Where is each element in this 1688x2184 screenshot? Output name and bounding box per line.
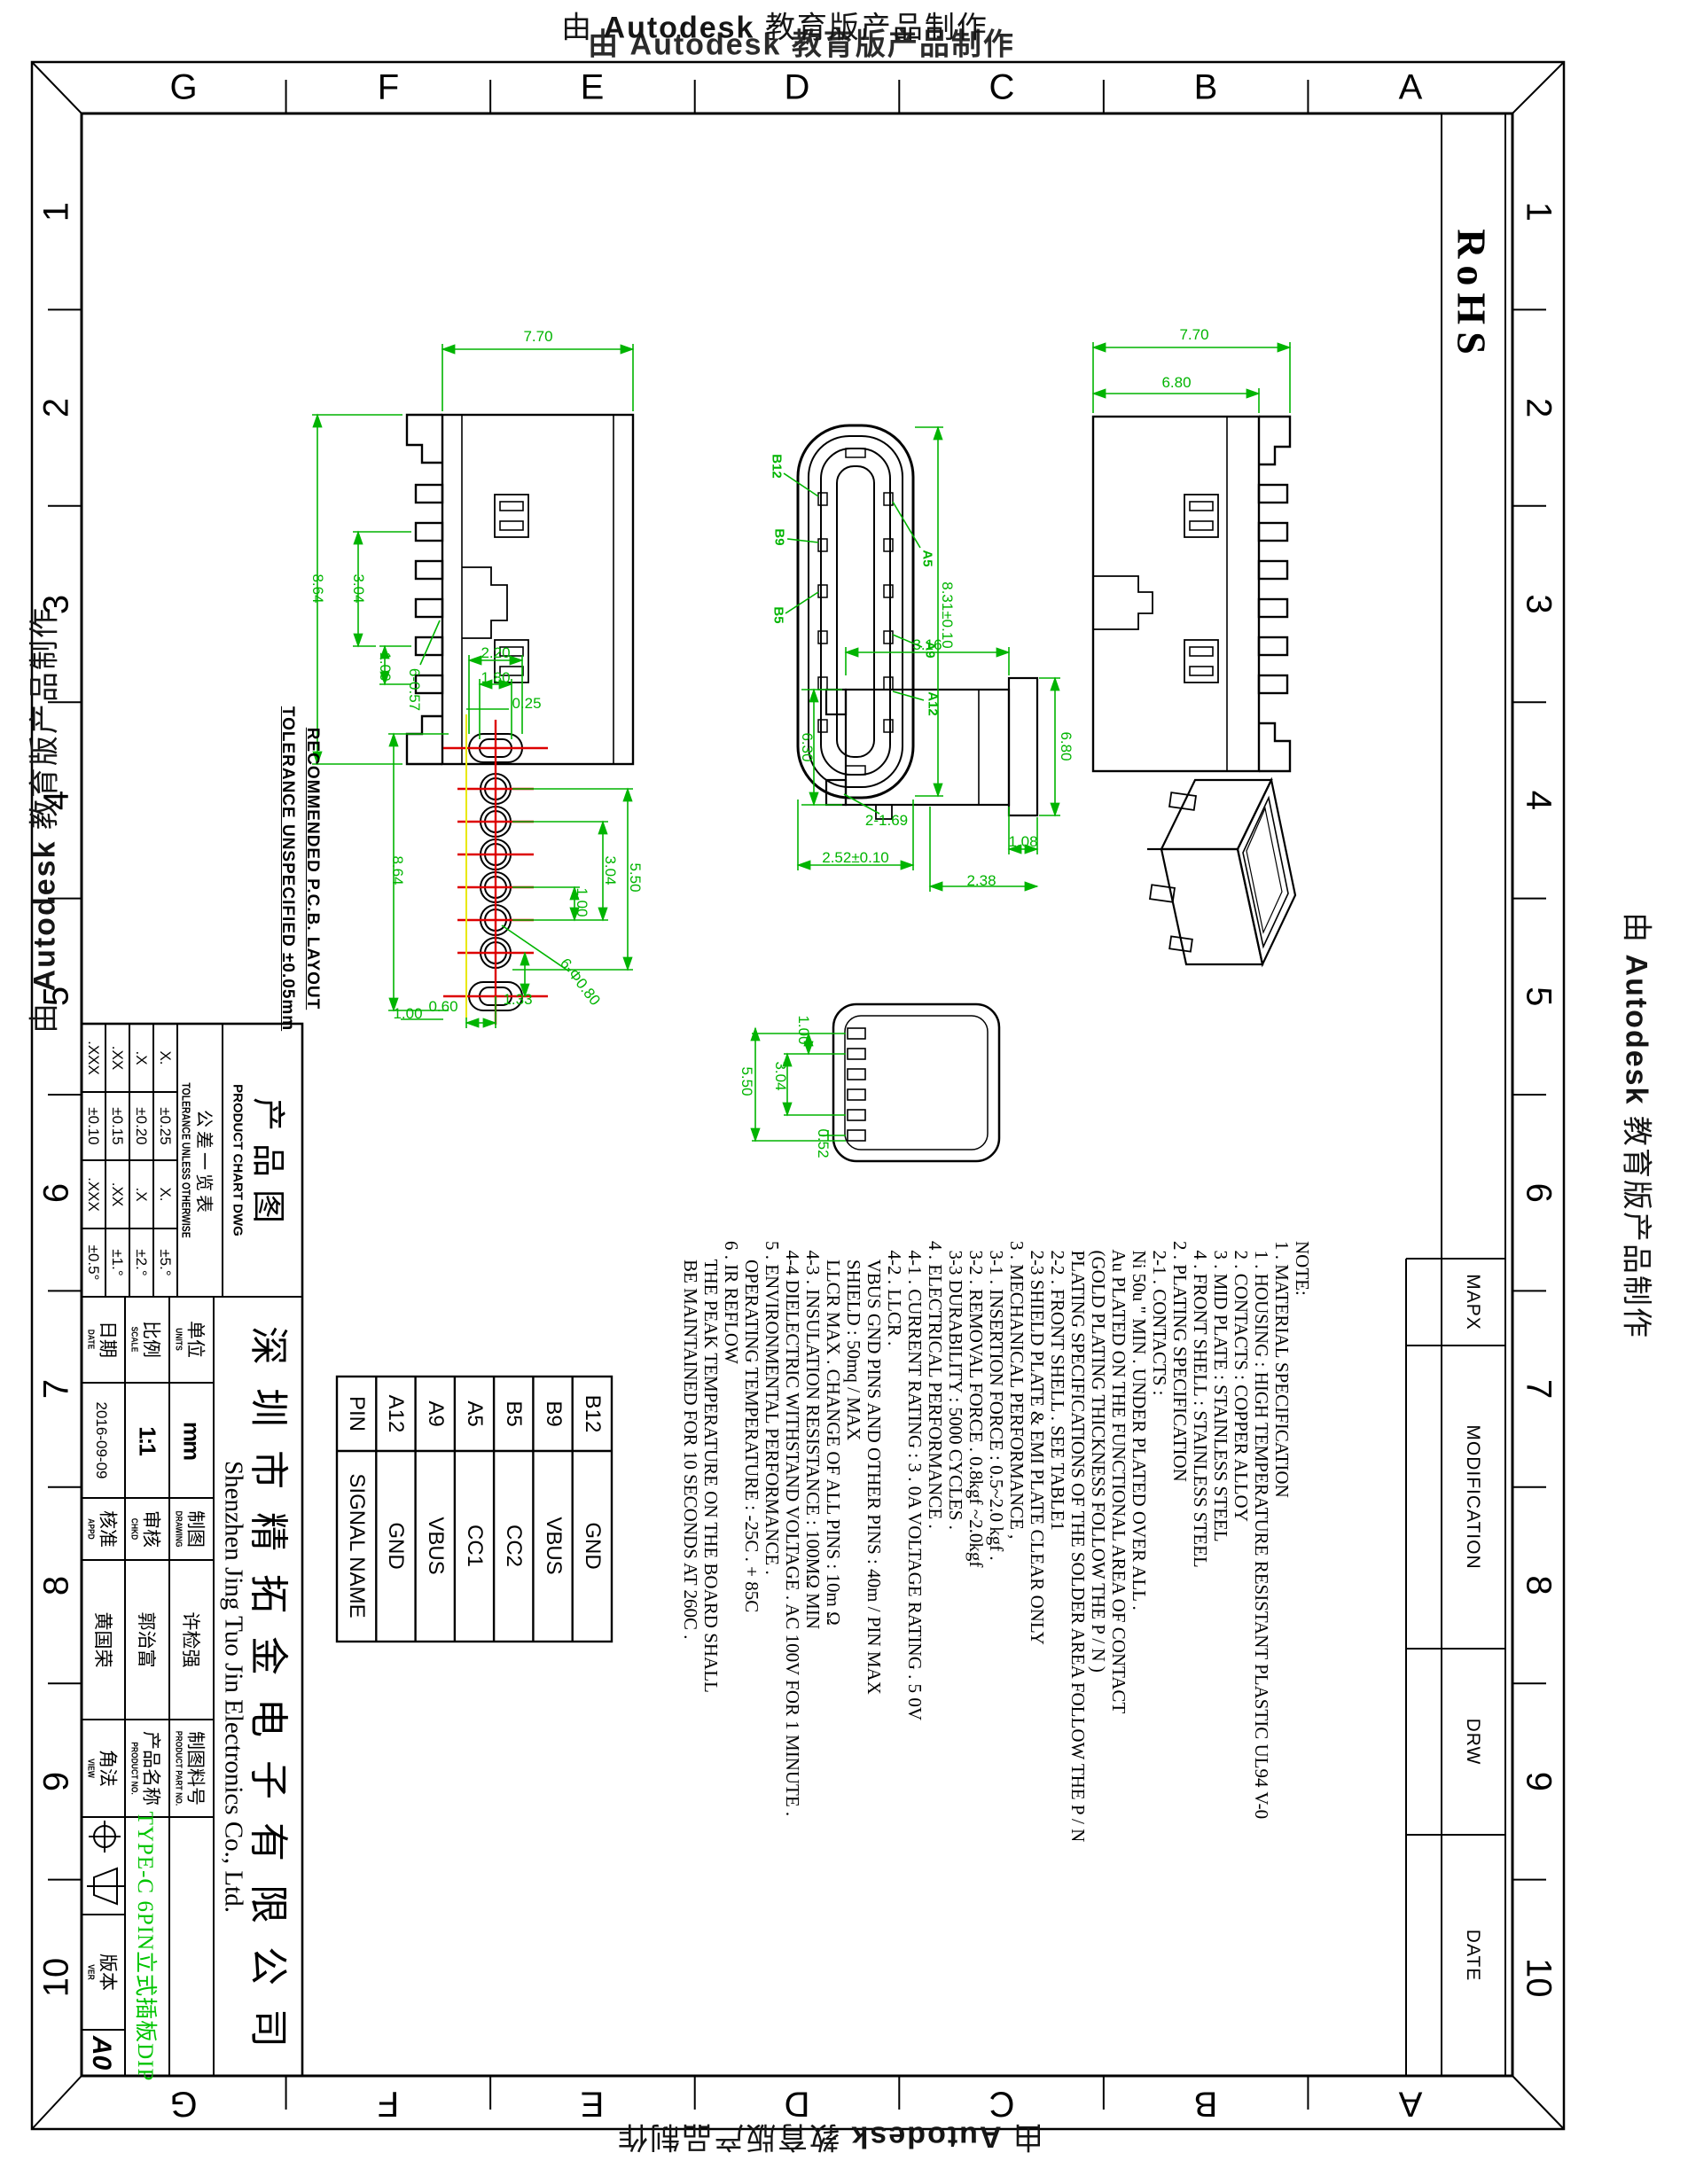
pin-table-cell: GND: [384, 1522, 409, 1569]
pin-table-cell: B9: [541, 1400, 566, 1426]
date-label-en: DATE: [86, 1323, 96, 1355]
pin-table-header: PIN: [344, 1396, 369, 1431]
projection-symbol: [87, 1821, 124, 1904]
tolerance-cell: ±0.15: [109, 1107, 127, 1144]
tolerance-cell: .X: [133, 1050, 151, 1065]
pin-table-cell: CC2: [501, 1525, 526, 1567]
dim-label: 0.25: [512, 695, 541, 713]
view-label: 角法 VIEW: [86, 1750, 122, 1787]
view-label-zh: 角法: [96, 1750, 122, 1787]
tolerance-cell: ±5.°: [157, 1249, 175, 1275]
dim-label: 3.16: [912, 636, 942, 654]
watermark-text: 教育版产品制作: [1620, 1105, 1653, 1338]
tolerance-cell: ±2.°: [133, 1249, 151, 1275]
product-name-label-en: PRODUCT NO.: [129, 1736, 139, 1799]
units-label-zh: 单位: [184, 1321, 210, 1358]
dim-label: 2.20: [481, 644, 510, 662]
border-row-label: C: [989, 68, 1014, 108]
product-name-value: TYPE-C 6PIN立式插板DIP: [131, 1812, 163, 2082]
pin-table-cell: A5: [462, 1400, 487, 1426]
dim-label: 8.64: [309, 573, 326, 603]
tolerance-cell: .XXX: [85, 1041, 103, 1075]
tolerance-cell: ±0.20: [133, 1107, 151, 1144]
pin-callout: B5: [771, 606, 786, 623]
pcb-layout-note: RECOMMENDED P.C.B. LAYOUT: [302, 728, 322, 1010]
pin-table-cell: B12: [580, 1395, 605, 1433]
border-row-label: G: [170, 68, 198, 108]
dim-label: 6.80: [1161, 374, 1191, 392]
border-column-label: 5: [37, 987, 77, 1006]
pin-callout: B12: [770, 454, 785, 479]
portrait-page: RoHS NOTE: 1 . MATERIAL SPECIFICATION 1 …: [0, 0, 1688, 2184]
tolerance-cell: ±0.5°: [85, 1245, 103, 1281]
watermark-text: Autodesk: [850, 2120, 1002, 2154]
dim-label: 1.00: [393, 1005, 422, 1023]
chkd-label-zh: 审核: [139, 1510, 166, 1548]
pin-callout: B9: [772, 528, 787, 545]
ver-label: 版本 VER: [86, 1954, 122, 1991]
tolerance-cell: ±1.°: [109, 1249, 127, 1275]
appd-name: 黄国荣: [90, 1612, 117, 1668]
revision-strip: [1406, 113, 1505, 2076]
dim-label: 1.00: [376, 651, 394, 681]
watermark-bottom: 由 Autodesk 教育版产品制作: [20, 606, 64, 1033]
part-no-label: 制图料号 PRODUCT PART NO.: [174, 1724, 210, 1812]
drawing-label-en: DRAWING: [174, 1510, 184, 1547]
dim-label: 6-0.57: [405, 668, 423, 711]
appd-label-en: APPD: [86, 1513, 96, 1545]
company-name-zh: 深圳市精拓金电子有限公司: [244, 1326, 301, 2071]
part-no-label-zh: 制图料号: [184, 1724, 210, 1812]
ver-value: A0: [86, 2036, 116, 2070]
tolerance-cell: ±0.25: [157, 1107, 175, 1144]
product-chart-title-en: PRODUCT CHART DWG: [231, 1084, 246, 1236]
watermark-text: 由: [1001, 2120, 1043, 2154]
border-row-label: G: [170, 2084, 198, 2124]
watermark-text: Autodesk: [28, 840, 62, 992]
pin-callout: A12: [926, 691, 941, 716]
dim-label: 7.70: [523, 328, 552, 346]
dim-label: 1.80: [481, 669, 510, 687]
border-row-label: B: [1194, 2084, 1218, 2124]
scale-label: 比例 SCALE: [129, 1321, 166, 1358]
company-name-en: Shenzhen Jing Tuo Jin Electronics Co., L…: [219, 1461, 248, 1913]
rohs-mark: RoHS: [1449, 229, 1496, 362]
watermark-text: Autodesk: [1620, 955, 1653, 1106]
dim-label: 5.50: [626, 862, 644, 892]
border-row-label: A: [1398, 68, 1422, 108]
border-column-label: 10: [1519, 1958, 1559, 1998]
dim-label: 6.80: [1057, 731, 1075, 760]
product-chart-title-zh: 产品图: [247, 1097, 296, 1236]
date-value: 2016-09-09: [92, 1402, 110, 1479]
pad-crosshairs: [443, 720, 548, 1025]
pcb-layout-note: TOLERANCE UNSPECIFIED ±0.05mm: [277, 706, 297, 1031]
chkd-label: 审核 CHKD: [129, 1510, 166, 1548]
pin-table-cell: VBUS: [541, 1517, 566, 1574]
pin-table-cell: B5: [501, 1400, 526, 1426]
border-column-label: 3: [37, 594, 77, 613]
border-column-label: 9: [1519, 1772, 1559, 1791]
revision-cell-label: MAPX: [1462, 1274, 1483, 1330]
pin-table-cell: VBUS: [423, 1517, 448, 1574]
view-isometric: [1147, 780, 1295, 964]
product-name-label-zh: 产品名称: [139, 1731, 166, 1806]
dim-label: 7.70: [1179, 326, 1208, 344]
chkd-label-en: CHKD: [129, 1513, 139, 1545]
date-label-zh: 日期: [96, 1321, 122, 1358]
dim-label: 3.04: [349, 573, 367, 603]
view-label-en: VIEW: [86, 1752, 96, 1784]
dim-label: 6.30: [798, 732, 816, 761]
scale-label-zh: 比例: [139, 1321, 166, 1358]
border-row-label: B: [1194, 68, 1218, 108]
appd-label-zh: 核准: [96, 1510, 122, 1548]
border-column-label: 8: [37, 1575, 77, 1595]
watermark-right: 由 Autodesk 教育版产品制作: [616, 2118, 1043, 2162]
tolerance-cell: X.: [157, 1050, 175, 1065]
tolerance-cell: .X: [133, 1187, 151, 1201]
border-column-label: 6: [37, 1183, 77, 1203]
dim-label: 0.60: [428, 998, 457, 1016]
revision-cell-label: DATE: [1462, 1930, 1483, 1981]
border-column-label: 10: [37, 1958, 77, 1998]
border-row-label: F: [378, 68, 399, 108]
border-row-label: F: [378, 2084, 399, 2124]
pin-table-cell: GND: [580, 1522, 605, 1569]
product-name-label: 产品名称 PRODUCT NO.: [129, 1731, 166, 1806]
border-row-label: E: [581, 68, 605, 108]
dim-label: 2.38: [966, 872, 996, 890]
revision-cell-label: DRW: [1462, 1719, 1483, 1766]
drawing-sheet: RoHS NOTE: 1 . MATERIAL SPECIFICATION 1 …: [0, 0, 1688, 2184]
border-row-label: C: [989, 2084, 1014, 2124]
pin-table-cell: CC1: [462, 1525, 487, 1567]
dim-label: 1.33: [503, 991, 532, 1009]
units-label-en: UNITS: [174, 1323, 184, 1355]
border-column-label: 7: [1519, 1379, 1559, 1399]
notes-block: NOTE: 1 . MATERIAL SPECIFICATION 1 . HOU…: [680, 1241, 1312, 1842]
dim-label: 1.08: [1008, 833, 1037, 851]
view-bottom: [833, 1004, 999, 1161]
border-row-label: A: [1398, 2084, 1422, 2124]
pin-table-header: SIGNAL NAME: [344, 1473, 369, 1618]
watermark-text: 教育版产品制作: [781, 28, 1014, 62]
scale-value: 1:1: [134, 1426, 161, 1455]
border-column-label: 3: [1519, 594, 1559, 613]
border-column-label: 4: [1519, 791, 1559, 810]
pin-table-cell: A9: [423, 1400, 448, 1426]
units-value: mm: [178, 1422, 206, 1459]
border-column-label: 4: [37, 791, 77, 810]
border-column-label: 7: [37, 1379, 77, 1399]
view-top: [1093, 417, 1290, 771]
ver-label-zh: 版本: [96, 1954, 122, 1991]
dim-label: 2-1.69: [865, 812, 908, 830]
border-row-label: D: [785, 2084, 810, 2124]
drawing-label-zh: 制图: [184, 1508, 210, 1550]
border-column-label: 5: [1519, 987, 1559, 1006]
watermark-text: 由: [1620, 912, 1653, 954]
drawing-name: 许检强: [178, 1612, 205, 1668]
drawing-label: 制图 DRAWING: [174, 1508, 210, 1550]
border-column-label: 9: [37, 1772, 77, 1791]
border-row-label: E: [581, 2084, 605, 2124]
border-column-label: 6: [1519, 1183, 1559, 1203]
tolerance-cell: X.: [157, 1187, 175, 1201]
dim-label: 3.04: [601, 855, 619, 885]
part-no-label-en: PRODUCT PART NO.: [174, 1731, 184, 1806]
dim-label: 1.00: [794, 1015, 812, 1044]
border-column-label: 1: [1519, 202, 1559, 222]
tolerance-cell: ±0.10: [85, 1107, 103, 1144]
watermark-text: 教育版产品制作: [616, 2120, 849, 2154]
tolerance-cell: .XX: [109, 1046, 127, 1070]
tolerance-title-zh: 公差一览表: [193, 1110, 219, 1216]
border-column-label: 8: [1519, 1575, 1559, 1595]
watermark-top: 由 Autodesk 教育版产品制作: [1618, 912, 1661, 1339]
dim-label: 1.00: [573, 887, 590, 916]
watermark-left-overlap: 由 Autodesk 教育版产品制作: [588, 20, 1015, 64]
dim-label: 0.52: [814, 1128, 832, 1158]
date-label: 日期 DATE: [86, 1321, 122, 1358]
border-row-label: D: [785, 68, 810, 108]
units-label: 单位 UNITS: [174, 1321, 210, 1358]
border-column-label: 2: [37, 398, 77, 417]
scale-label-en: SCALE: [129, 1323, 139, 1355]
pin-table-cell: A12: [384, 1395, 409, 1433]
view-pcb-layout: [443, 714, 548, 1025]
dim-label: 5.50: [738, 1066, 755, 1096]
watermark-text: Autodesk: [630, 28, 782, 62]
dim-label: 3.04: [771, 1061, 789, 1090]
tolerance-cell: .XX: [109, 1182, 127, 1206]
border-column-label: 1: [37, 202, 77, 222]
tolerance-cell: .XXX: [85, 1177, 103, 1212]
watermark-text: 由: [588, 28, 629, 62]
ver-label-en: VER: [86, 1956, 96, 1988]
pin-callout: A5: [920, 550, 935, 566]
chkd-name: 郭治富: [134, 1612, 160, 1668]
border-column-label: 2: [1519, 398, 1559, 417]
tolerance-title-en: TOLERANCE UNLESS OTHERWISE: [180, 1082, 193, 1237]
revision-cell-label: MODIFICATION: [1462, 1424, 1483, 1569]
appd-label: 核准 APPD: [86, 1510, 122, 1548]
dim-label: 2.52±0.10: [822, 849, 889, 867]
dim-label: 8.64: [388, 855, 406, 885]
